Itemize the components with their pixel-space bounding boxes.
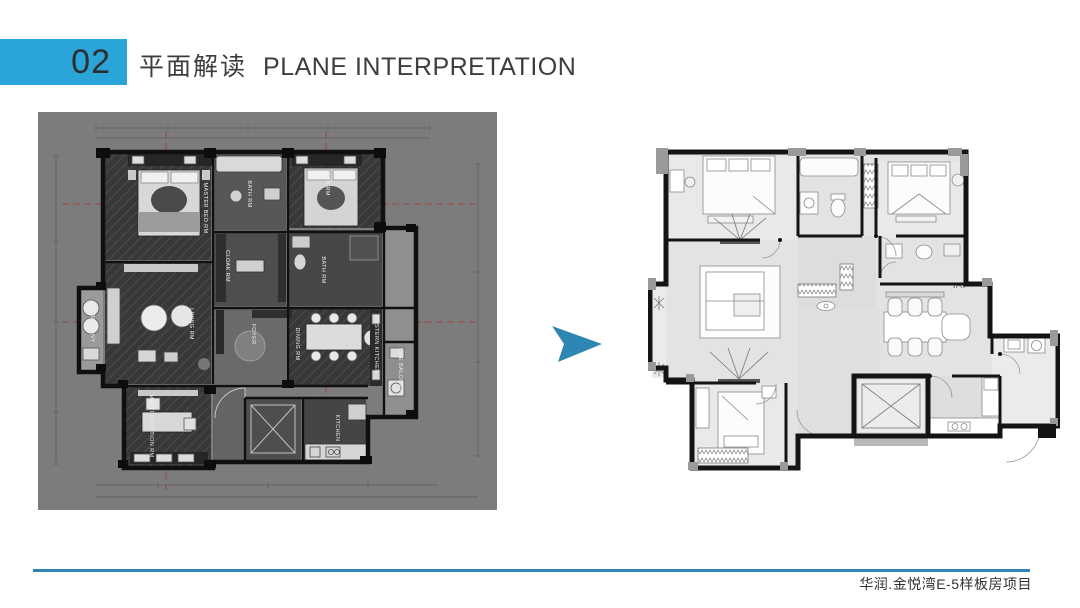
right-floor-plan: [648, 136, 1060, 482]
section-number: 02: [71, 43, 111, 82]
room-label: KITCHEN: [334, 415, 340, 442]
right-arrow-icon: [552, 326, 602, 362]
room-label: MULTI FUNCTION RM: [148, 395, 154, 458]
room-label: LIFE BALCONY: [397, 348, 403, 392]
room-label: FOYER: [250, 324, 256, 345]
room-label: BALCONY: [89, 313, 95, 342]
page-title-chinese: 平面解读: [139, 53, 247, 81]
entry-door-block: [1038, 424, 1056, 438]
room-label: CLOAK RM: [224, 250, 230, 282]
page-title-english: PLANE INTERPRETATION: [263, 53, 576, 81]
room-label: BATH RM: [320, 256, 326, 283]
room-label: BED RM: [324, 172, 330, 196]
section-number-block: 02: [0, 39, 127, 85]
room-label: LIVING RM: [188, 308, 194, 340]
project-name: 华润.金悦湾E-5样板房项目: [859, 574, 1032, 594]
room-label: WESTERN KITCHEN: [373, 314, 379, 373]
page-title: 平面解读PLANE INTERPRETATION: [139, 47, 576, 83]
slide: 02 平面解读PLANE INTERPRETATION: [0, 0, 1080, 608]
left-floor-plan: MASTER BED RM BATH RM BED RM CLOAK RM BA…: [38, 112, 497, 510]
room-label: DINING RM: [294, 328, 300, 361]
room-label: MASTER BED RM: [202, 182, 208, 233]
room-label: BATH RM: [246, 180, 252, 207]
footer-accent-line: [33, 569, 1030, 572]
